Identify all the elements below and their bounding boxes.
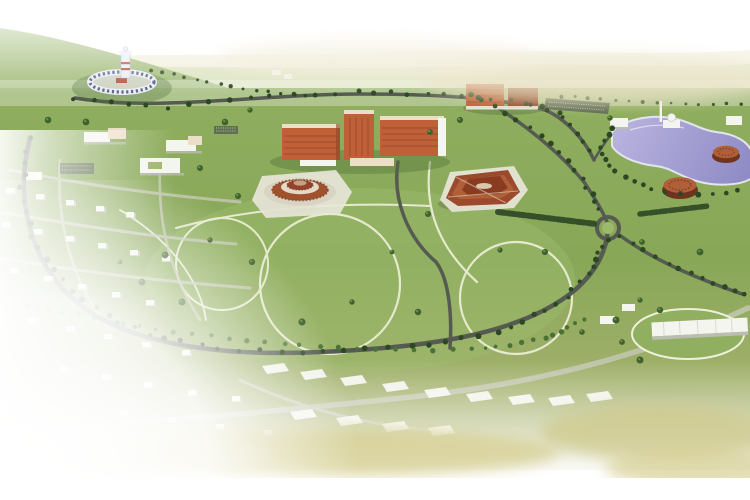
roadside-tree (700, 276, 704, 280)
academic-tower-block (344, 114, 374, 160)
roadside-tree (607, 163, 611, 167)
roadside-tree (451, 347, 456, 352)
tree-highlight (543, 250, 545, 252)
roadside-tree (740, 103, 743, 106)
roadside-tree (631, 241, 635, 245)
roadside-tree (600, 245, 604, 249)
roadside-tree (678, 191, 683, 196)
roadside-tree (641, 182, 646, 187)
tree-highlight (223, 120, 225, 122)
tree (45, 117, 52, 124)
roadside-tree (561, 115, 565, 119)
roadside-tree (550, 332, 555, 337)
roadside-tree (623, 174, 629, 180)
roadside-tree (249, 95, 253, 99)
roadside-tree (710, 281, 715, 286)
roadside-tree (206, 99, 211, 104)
roadside-tree (572, 168, 577, 173)
roadside-tree (733, 288, 738, 293)
roadside-tree (695, 192, 701, 198)
roadside-tree (557, 110, 562, 115)
roadside-tree (593, 257, 599, 263)
roadside-tree (602, 139, 606, 143)
tree (579, 329, 585, 335)
roadside-tree (509, 325, 513, 329)
roadside-tree (603, 157, 608, 162)
tree (197, 165, 203, 171)
roadside-tree (508, 343, 513, 348)
roadside-tree (722, 284, 728, 290)
tree-highlight (608, 116, 610, 118)
roadside-tree (573, 321, 577, 325)
roadside-tree (166, 106, 170, 110)
minaret (660, 103, 662, 122)
tree (83, 119, 90, 126)
tree-highlight (620, 340, 622, 342)
tree-highlight (84, 120, 86, 122)
roadside-tree (524, 101, 529, 106)
roadside-tree (640, 247, 645, 252)
roadside-tree (711, 192, 715, 196)
roadside-tree (539, 104, 545, 110)
tree-highlight (658, 308, 660, 310)
roadside-tree (531, 337, 536, 342)
tree (247, 107, 252, 112)
roadside-tree (607, 132, 613, 138)
roadside-tree (569, 287, 574, 292)
roadside-tree (493, 104, 498, 109)
roadside-tree (581, 177, 585, 181)
low-wing (300, 160, 336, 166)
roadside-tree (724, 191, 729, 196)
roadside-tree (458, 335, 463, 340)
roadside-tree (484, 346, 487, 349)
roadside-tree (543, 335, 548, 340)
roadside-tree (591, 264, 596, 269)
tree-highlight (390, 250, 392, 252)
round-tiered-building-east (438, 166, 528, 212)
roadside-tree (470, 346, 474, 350)
roadside-tree (581, 139, 585, 143)
roadside-tree (600, 152, 605, 157)
tree (415, 309, 422, 316)
roadside-tree (519, 340, 524, 345)
roadside-tree (548, 141, 554, 147)
roadside-tree (675, 266, 681, 272)
low-building (726, 116, 742, 125)
academic-block-west (282, 128, 340, 160)
roadside-tree (725, 102, 729, 106)
tree (542, 249, 548, 255)
roadside-tree (565, 325, 570, 330)
tree-highlight (640, 240, 642, 242)
masterplan-svg (0, 0, 750, 500)
roadside-tree (557, 150, 561, 154)
roadside-tree (519, 319, 525, 325)
roadside-tree (143, 103, 148, 108)
roadside-tree (539, 133, 544, 138)
tree (497, 247, 502, 252)
roadside-tree (606, 237, 611, 242)
roundabout-island (602, 222, 614, 234)
roadside-tree (426, 342, 431, 347)
roadside-tree (475, 333, 481, 339)
roadside-tree (502, 111, 508, 117)
roadside-tree (653, 254, 658, 259)
tree-highlight (46, 118, 48, 120)
roadside-tree (587, 271, 591, 275)
roadside-tree (609, 125, 615, 131)
roadside-tree (479, 97, 484, 102)
roadside-tree (227, 97, 233, 103)
roadside-tree (393, 347, 398, 352)
roadside-tree (689, 271, 694, 276)
tree-highlight (426, 212, 428, 214)
tree-highlight (638, 358, 640, 360)
roadside-tree (575, 132, 580, 137)
tree (613, 317, 620, 324)
roadside-tree (668, 262, 672, 266)
tree (697, 249, 704, 256)
roadside-tree (697, 103, 700, 106)
roadside-tree (598, 145, 602, 149)
roadside-tree (566, 158, 572, 164)
roadside-tree (545, 108, 550, 113)
roadside-tree (496, 329, 502, 335)
roadside-tree (712, 103, 715, 106)
roadside-tree (385, 345, 390, 350)
tree (657, 307, 663, 313)
roadside-tree (595, 250, 599, 254)
roadside-tree (109, 99, 114, 104)
roadside-tree (513, 117, 518, 122)
tree (637, 297, 642, 302)
tree (425, 211, 431, 217)
roadside-tree (684, 102, 687, 105)
roadside-tree (670, 102, 673, 105)
roadside-tree (528, 102, 532, 106)
tree (619, 339, 625, 345)
tree (222, 119, 229, 126)
tree-highlight (428, 130, 430, 132)
tree-highlight (638, 298, 640, 300)
roadside-tree (71, 97, 75, 101)
low-wing (350, 158, 394, 166)
roadside-tree (632, 179, 637, 184)
top-fade (0, 0, 750, 95)
tree-highlight (248, 108, 250, 110)
roadside-tree (92, 98, 97, 103)
roadside-tree (568, 123, 572, 127)
roadside-tree (597, 207, 601, 211)
roadside-tree (567, 295, 571, 299)
roadside-tree (591, 191, 597, 197)
low-building (188, 136, 202, 145)
roadside-tree (494, 345, 498, 349)
white-end-wall (438, 118, 446, 156)
tree-highlight (698, 250, 700, 252)
roadside-tree (582, 317, 586, 321)
parking-lot (214, 126, 238, 134)
tree (457, 117, 463, 123)
tree-highlight (498, 248, 500, 250)
roadside-tree (186, 101, 192, 107)
roadside-tree (126, 102, 131, 107)
roadside-tree (578, 279, 582, 283)
tree (607, 115, 612, 120)
tree-highlight (614, 318, 616, 320)
block-side-shade (336, 124, 340, 160)
roadside-tree (443, 339, 448, 344)
roadside-tree (587, 148, 591, 152)
tree-highlight (458, 118, 460, 120)
tree-highlight (416, 310, 418, 312)
mosque-dome (668, 114, 676, 122)
tree-highlight (580, 330, 582, 332)
drum-building-roof (713, 146, 739, 158)
small-pad (622, 304, 635, 311)
roadside-tree (612, 168, 617, 173)
tree (639, 239, 645, 245)
academic-block-east (380, 120, 444, 156)
tree-highlight (198, 166, 200, 168)
roadside-tree (592, 199, 597, 204)
roadside-tree (742, 292, 747, 297)
tree (427, 129, 433, 135)
roadside-tree (543, 309, 547, 313)
masterplan-render (0, 0, 750, 500)
roadside-tree (583, 186, 587, 190)
corner-fade (0, 180, 380, 500)
roadside-tree (617, 234, 621, 238)
roadside-tree (663, 190, 667, 194)
roadside-tree (528, 125, 532, 129)
roadside-tree (559, 329, 564, 334)
roadside-tree (412, 348, 417, 353)
white-base (466, 106, 538, 110)
roadside-tree (553, 302, 558, 307)
roadside-tree (735, 188, 740, 193)
roadside-tree (532, 312, 537, 317)
roadside-tree (649, 187, 653, 191)
roadside-tree (430, 348, 435, 353)
